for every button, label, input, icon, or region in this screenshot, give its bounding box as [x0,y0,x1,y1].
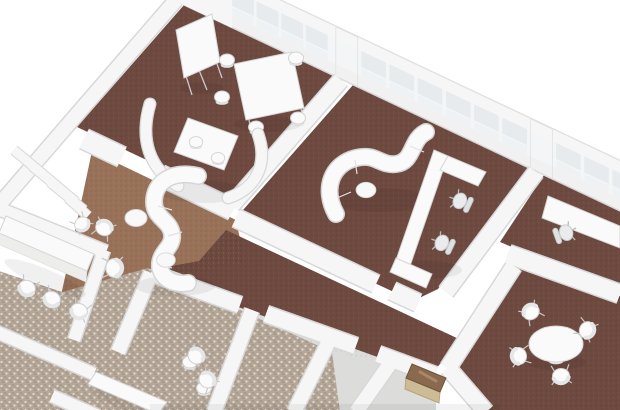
ottoman-pouf [125,210,147,227]
bar-stool [291,112,306,126]
wall-segment [392,291,418,303]
bar-stool [215,91,230,105]
floors [0,5,620,410]
round-meeting-table [529,326,583,362]
ottoman-pouf [356,182,376,197]
scene-canvas [0,0,620,410]
bar-stool [211,153,225,165]
bottom-cut-shadow [150,404,500,410]
bar-stool [220,54,235,68]
floor-textures [0,5,620,410]
floorplan-render [0,0,620,410]
bar-stool [289,52,304,66]
ottoman-pouf [157,253,176,267]
bar-stool [189,137,203,149]
